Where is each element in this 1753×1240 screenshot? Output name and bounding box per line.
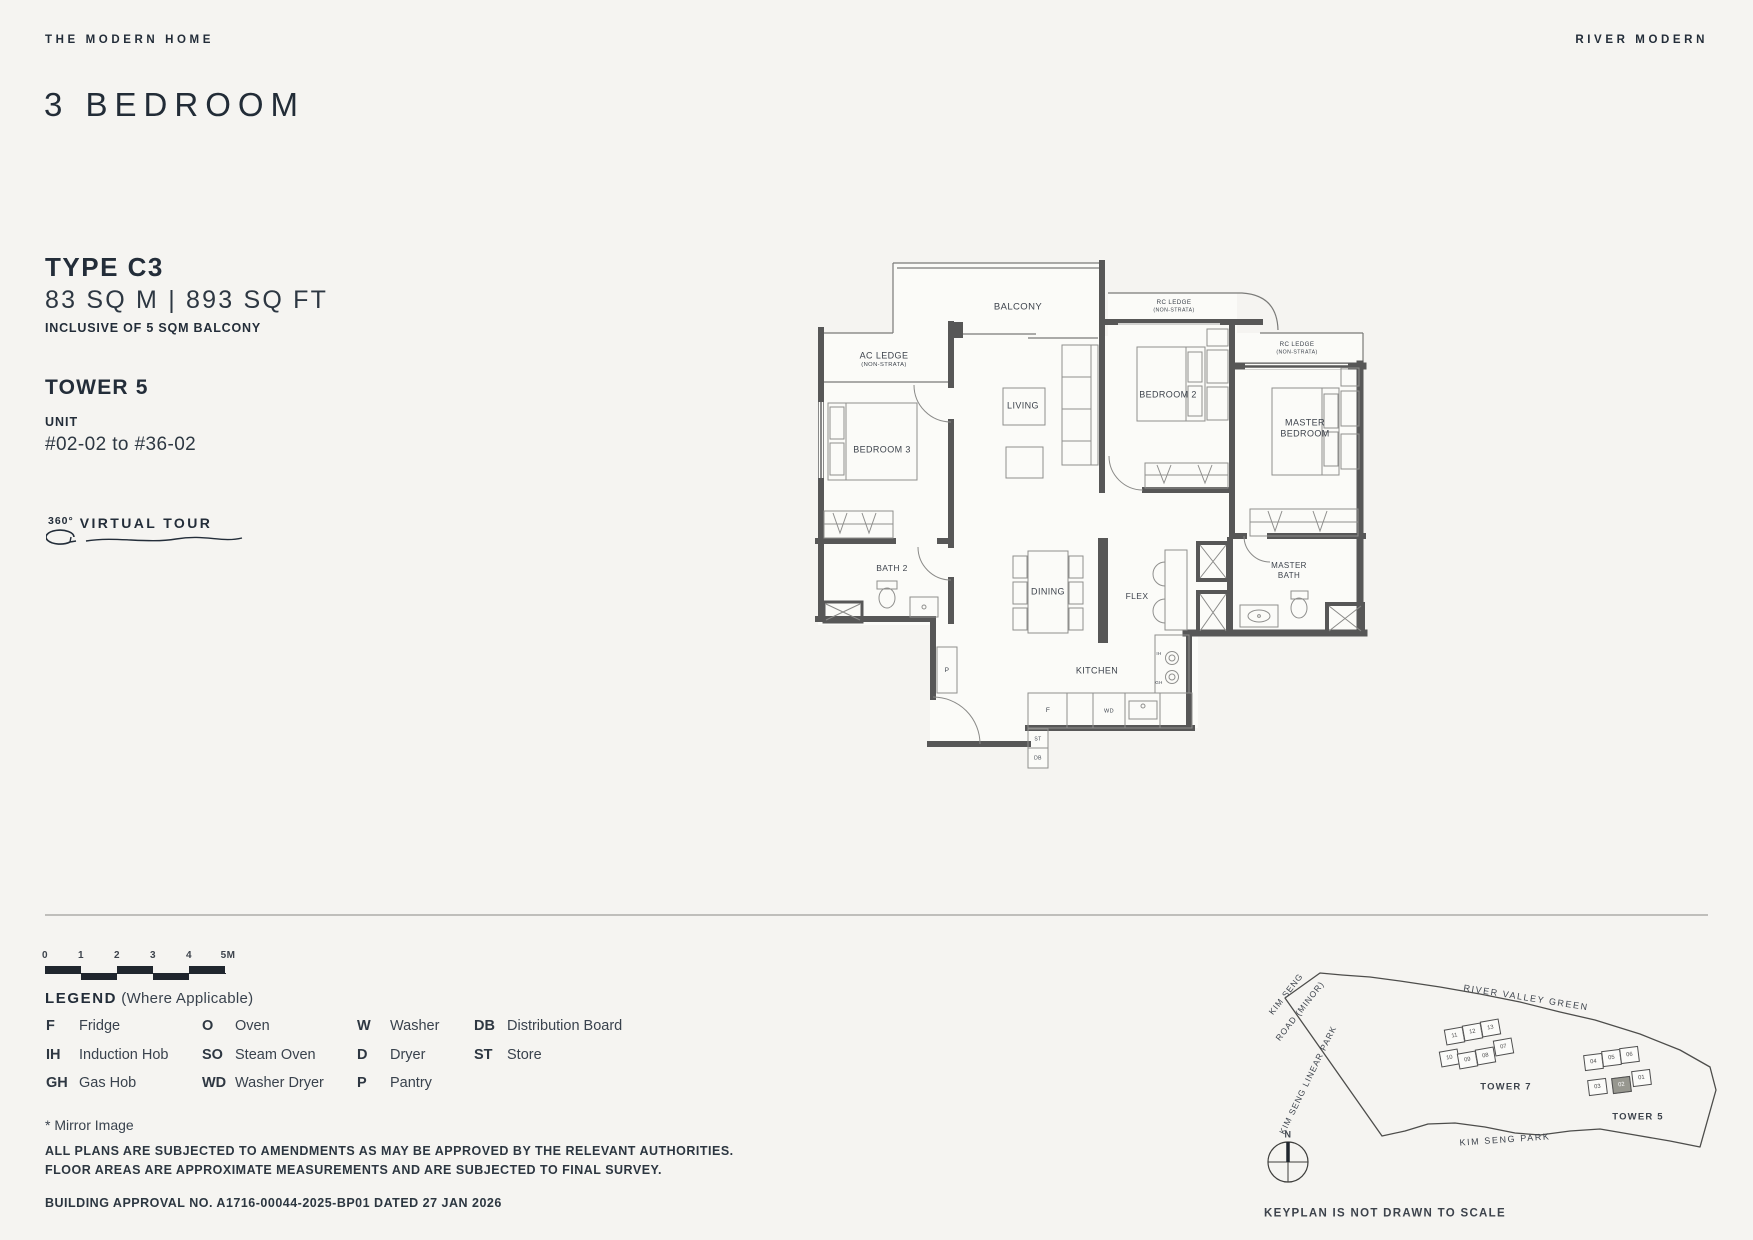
legend-item-d: DDryer bbox=[357, 1047, 439, 1076]
virtual-tour-icon bbox=[46, 529, 276, 559]
legend-term: Steam Oven bbox=[235, 1047, 316, 1063]
label-tower-5: TOWER 5 bbox=[1612, 1112, 1664, 1122]
brand-left: THE MODERN HOME bbox=[45, 34, 214, 46]
legend-abbr: ST bbox=[474, 1047, 507, 1063]
label-master: MASTER bbox=[1271, 562, 1307, 570]
label-dining: DINING bbox=[1031, 588, 1065, 597]
legend-term: Oven bbox=[235, 1018, 270, 1034]
label--non-strata-: (NON-STRATA) bbox=[1276, 350, 1317, 355]
scale-segment bbox=[45, 966, 81, 973]
room-fills bbox=[818, 263, 1363, 768]
legend-term: Gas Hob bbox=[79, 1075, 136, 1091]
label-kitchen: KITCHEN bbox=[1076, 667, 1118, 676]
legend-abbr: O bbox=[202, 1018, 235, 1034]
label-bedroom: BEDROOM bbox=[1280, 430, 1329, 439]
label-master: MASTER bbox=[1285, 419, 1325, 428]
label-2: 2 bbox=[114, 951, 120, 961]
legend-term: Distribution Board bbox=[507, 1018, 622, 1034]
kitchen-island-wall bbox=[1098, 538, 1108, 643]
scale-segment bbox=[189, 966, 225, 973]
label-4: 4 bbox=[186, 951, 192, 961]
legend-item-ih: IHInduction Hob bbox=[46, 1047, 168, 1076]
scale-segment bbox=[117, 966, 153, 973]
scale-segment bbox=[81, 973, 117, 980]
legend-term: Dryer bbox=[390, 1047, 425, 1063]
label-p: P bbox=[945, 668, 950, 675]
floorplan-drawing bbox=[800, 250, 1400, 770]
keyplan-unit-01: 01 bbox=[1631, 1069, 1652, 1087]
disclaimer-line1: ALL PLANS ARE SUBJECTED TO AMENDMENTS AS… bbox=[45, 1142, 734, 1161]
legend-term: Washer bbox=[390, 1018, 439, 1034]
legend-item-db: DBDistribution Board bbox=[474, 1018, 622, 1047]
keyplan: 11121307100908 040506030201 KIM SENGROAD… bbox=[1240, 940, 1730, 1240]
label-balcony: BALCONY bbox=[994, 302, 1042, 312]
legend-title: LEGEND (Where Applicable) bbox=[45, 990, 253, 1007]
label-ih: IH bbox=[1156, 652, 1161, 657]
label-ac-ledge: AC LEDGE bbox=[860, 352, 909, 361]
label-3: 3 bbox=[150, 951, 156, 961]
legend-column: WWasherDDryerPPantry bbox=[357, 1018, 439, 1104]
unit-range: #02-02 to #36-02 bbox=[45, 434, 196, 456]
scale-bar-line bbox=[45, 973, 226, 974]
tour-degree-label: 360° bbox=[48, 515, 74, 527]
scale-bar: 012345M bbox=[45, 948, 245, 988]
legend-term: Washer Dryer bbox=[235, 1075, 324, 1091]
label-bedroom-2: BEDROOM 2 bbox=[1139, 391, 1197, 400]
legend-item-p: PPantry bbox=[357, 1075, 439, 1104]
legend-subtitle: (Where Applicable) bbox=[121, 990, 253, 1007]
unit-area: 83 SQ M | 893 SQ FT bbox=[45, 286, 328, 315]
legend-abbr: SO bbox=[202, 1047, 235, 1063]
legend-column: DBDistribution BoardSTStore bbox=[474, 1018, 622, 1075]
label-rc-ledge: RC LEDGE bbox=[1280, 342, 1315, 348]
legend-column: FFridgeIHInduction HobGHGas Hob bbox=[46, 1018, 168, 1104]
keyplan-unit-06: 06 bbox=[1619, 1046, 1640, 1064]
legend-abbr: IH bbox=[46, 1047, 79, 1063]
area-note: INCLUSIVE OF 5 SQM BALCONY bbox=[45, 321, 261, 335]
legend-abbr: F bbox=[46, 1018, 79, 1034]
keyplan-unit-02: 02 bbox=[1611, 1076, 1632, 1094]
label-gh: GH bbox=[1155, 681, 1163, 686]
disclaimer-notes: ALL PLANS ARE SUBJECTED TO AMENDMENTS AS… bbox=[45, 1142, 734, 1180]
label-f: F bbox=[1046, 708, 1050, 715]
legend-term: Induction Hob bbox=[79, 1047, 168, 1063]
legend-abbr: WD bbox=[202, 1075, 235, 1091]
label-5m: 5M bbox=[221, 951, 236, 961]
label-n: N bbox=[1285, 1131, 1292, 1140]
legend-term: Pantry bbox=[390, 1075, 432, 1091]
legend-item-so: SOSteam Oven bbox=[202, 1047, 324, 1076]
floorplan: BALCONYAC LEDGE(NON-STRATA)RC LEDGE(NON-… bbox=[800, 250, 1400, 770]
label-bath-2: BATH 2 bbox=[876, 564, 908, 573]
label-rc-ledge: RC LEDGE bbox=[1157, 300, 1192, 306]
label-st: ST bbox=[1034, 738, 1041, 743]
legend-abbr: W bbox=[357, 1018, 390, 1034]
legend-term: Fridge bbox=[79, 1018, 120, 1034]
label-keyplan-is-not-drawn-to-scale: KEYPLAN IS NOT DRAWN TO SCALE bbox=[1264, 1208, 1506, 1220]
legend-item-wd: WDWasher Dryer bbox=[202, 1075, 324, 1104]
legend-item-gh: GHGas Hob bbox=[46, 1075, 168, 1104]
legend-abbr: GH bbox=[46, 1075, 79, 1091]
legend-item-w: WWasher bbox=[357, 1018, 439, 1047]
disclaimer-line2: FLOOR AREAS ARE APPROXIMATE MEASUREMENTS… bbox=[45, 1161, 734, 1180]
unit-label: UNIT bbox=[45, 415, 78, 429]
legend-abbr: DB bbox=[474, 1018, 507, 1034]
label-1: 1 bbox=[78, 951, 84, 961]
legend-title-main: LEGEND bbox=[45, 990, 117, 1007]
floorplan-brochure-page: THE MODERN HOME RIVER MODERN 3 BEDROOM T… bbox=[0, 0, 1753, 1240]
mirror-image-note: * Mirror Image bbox=[45, 1117, 134, 1133]
building-approval-note: BUILDING APPROVAL NO. A1716-00044-2025-B… bbox=[45, 1196, 502, 1210]
unit-type: TYPE C3 bbox=[45, 252, 164, 283]
keyplan-unit-03: 03 bbox=[1587, 1078, 1608, 1096]
legend-term: Store bbox=[507, 1047, 542, 1063]
section-divider bbox=[45, 914, 1708, 916]
page-title: 3 BEDROOM bbox=[44, 86, 305, 124]
brand-right: RIVER MODERN bbox=[1575, 34, 1708, 46]
legend-item-f: FFridge bbox=[46, 1018, 168, 1047]
label-wd: WD bbox=[1104, 709, 1114, 715]
label--non-strata-: (NON-STRATA) bbox=[1153, 308, 1194, 313]
virtual-tour-link[interactable]: 360°VIRTUAL TOUR bbox=[48, 515, 268, 555]
label-0: 0 bbox=[42, 951, 48, 961]
label-bedroom-3: BEDROOM 3 bbox=[853, 446, 911, 455]
label-bath: BATH bbox=[1278, 572, 1300, 580]
legend-item-o: OOven bbox=[202, 1018, 324, 1047]
label-living: LIVING bbox=[1007, 402, 1039, 411]
label-flex: FLEX bbox=[1126, 592, 1149, 601]
legend-item-st: STStore bbox=[474, 1047, 622, 1076]
tower-name: TOWER 5 bbox=[45, 376, 149, 400]
label--non-strata-: (NON-STRATA) bbox=[861, 363, 906, 369]
legend-abbr: P bbox=[357, 1075, 390, 1091]
legend-abbr: D bbox=[357, 1047, 390, 1063]
balcony-pillar bbox=[948, 322, 963, 338]
legend-column: OOvenSOSteam OvenWDWasher Dryer bbox=[202, 1018, 324, 1104]
label-db: DB bbox=[1034, 757, 1042, 762]
label-tower-7: TOWER 7 bbox=[1480, 1082, 1532, 1092]
scale-segment bbox=[153, 973, 189, 980]
